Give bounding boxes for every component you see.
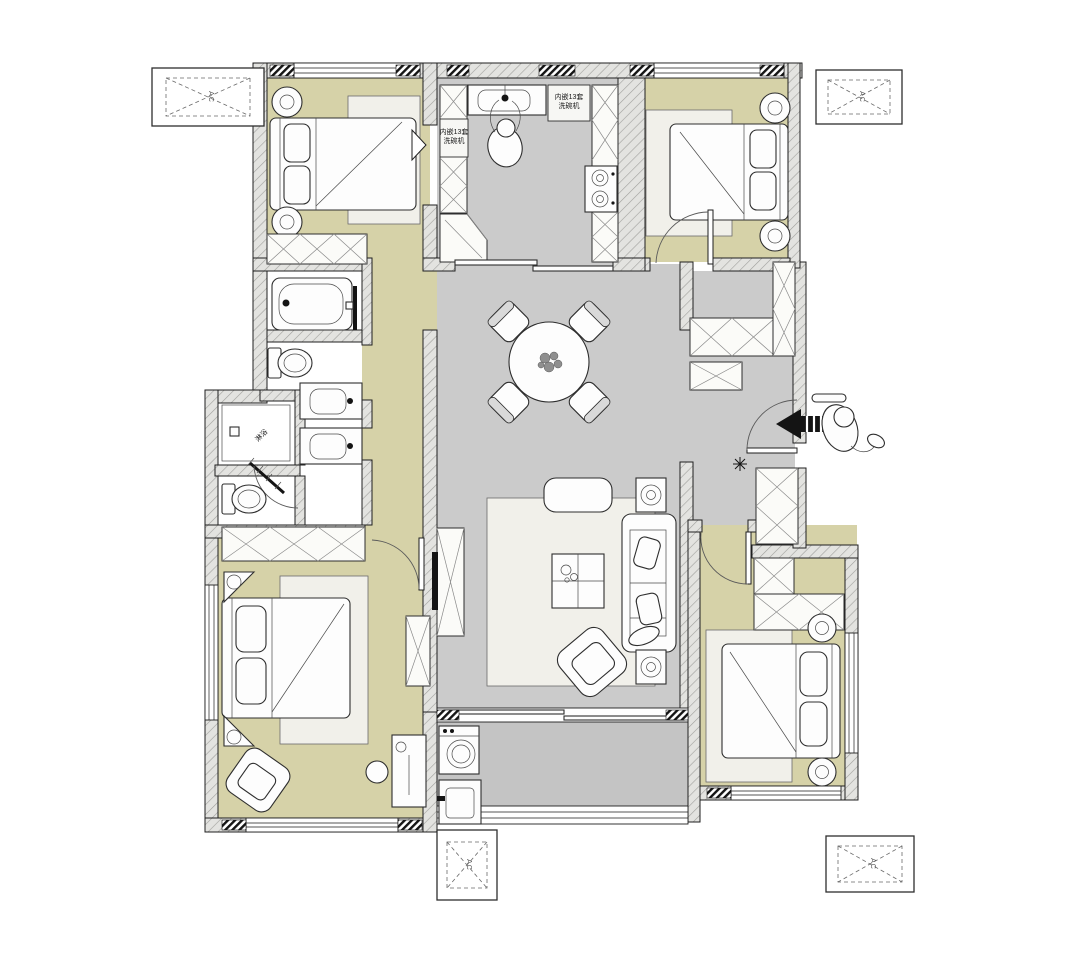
dishwasher-icon: 内嵌13套 洗碗机 bbox=[548, 85, 590, 121]
svg-text:内嵌13套: 内嵌13套 bbox=[555, 92, 584, 101]
bag bbox=[865, 431, 887, 450]
pillow bbox=[236, 606, 266, 652]
bench-icon bbox=[544, 478, 612, 512]
svg-text:洗碗机: 洗碗机 bbox=[559, 101, 580, 110]
coffee-table-icon bbox=[552, 554, 604, 608]
pillow bbox=[236, 658, 266, 704]
towel-bar-icon bbox=[353, 286, 357, 330]
nightstand-icon bbox=[272, 207, 302, 237]
svg-text:内嵌13套: 内嵌13套 bbox=[440, 127, 469, 136]
toilet-icon bbox=[222, 484, 266, 514]
dresser-icon bbox=[406, 616, 430, 686]
side-table-lamp-icon bbox=[636, 478, 666, 512]
svg-text:AC: AC bbox=[465, 859, 472, 871]
stool-icon bbox=[366, 761, 388, 783]
sofa-icon bbox=[622, 514, 676, 652]
wall-hook bbox=[346, 302, 353, 309]
desk-icon bbox=[392, 735, 426, 807]
entry-closet bbox=[756, 468, 798, 544]
ac-platform-icon: AC bbox=[816, 70, 902, 124]
svg-text:洗碗机: 洗碗机 bbox=[444, 136, 465, 145]
kitchen-sink-icon bbox=[468, 85, 546, 115]
nightstand-icon bbox=[808, 614, 836, 642]
shoe-cabinet bbox=[690, 362, 742, 390]
side-table-lamp-icon bbox=[636, 650, 666, 684]
pillow bbox=[800, 702, 827, 746]
svg-text:AC: AC bbox=[207, 91, 214, 103]
dishwasher-icon: 内嵌13套 洗碗机 bbox=[440, 119, 469, 157]
pillow bbox=[800, 652, 827, 696]
ac-platform-icon: AC bbox=[437, 830, 497, 900]
wall-lamp-icon bbox=[733, 457, 747, 471]
bedroom3-east-window bbox=[845, 633, 858, 753]
svg-text:AC: AC bbox=[858, 91, 865, 103]
wardrobe-icon bbox=[267, 234, 367, 264]
master-west-window bbox=[205, 585, 218, 720]
master-south-window bbox=[246, 818, 398, 832]
pillow bbox=[750, 130, 776, 168]
tv-cabinet-icon bbox=[437, 528, 464, 636]
wardrobe-icon bbox=[222, 527, 365, 561]
gas-stove-icon bbox=[585, 166, 617, 212]
bedroom3-south-window bbox=[731, 786, 841, 800]
pillow bbox=[750, 172, 776, 210]
bathtub-icon bbox=[272, 278, 352, 330]
nightstand-icon bbox=[760, 221, 790, 251]
floor-plan-canvas: 内嵌13套 洗碗机 内嵌13套 洗碗机 bbox=[0, 0, 1080, 972]
nightstand-icon bbox=[272, 87, 302, 117]
ac-platform-icon: AC bbox=[152, 68, 264, 126]
svg-text:AC: AC bbox=[869, 858, 876, 870]
hallway-cabinet bbox=[773, 262, 795, 356]
toilet-icon bbox=[268, 348, 312, 378]
nightstand-icon bbox=[808, 758, 836, 786]
hallway-cabinet bbox=[690, 318, 775, 356]
person-icon bbox=[812, 394, 887, 456]
sink-icon bbox=[300, 383, 362, 419]
nightstand-icon bbox=[760, 93, 790, 123]
washing-machine-icon bbox=[439, 726, 479, 774]
wall-hatch-block bbox=[270, 65, 294, 76]
ac-platform-icon: AC bbox=[826, 836, 914, 892]
tv-icon bbox=[432, 552, 438, 610]
pillow bbox=[284, 124, 310, 162]
sink-icon bbox=[300, 428, 362, 464]
pillow bbox=[284, 166, 310, 204]
floor-plan-svg: 内嵌13套 洗碗机 内嵌13套 洗碗机 bbox=[0, 0, 1080, 972]
laundry-sink-icon bbox=[437, 780, 481, 824]
